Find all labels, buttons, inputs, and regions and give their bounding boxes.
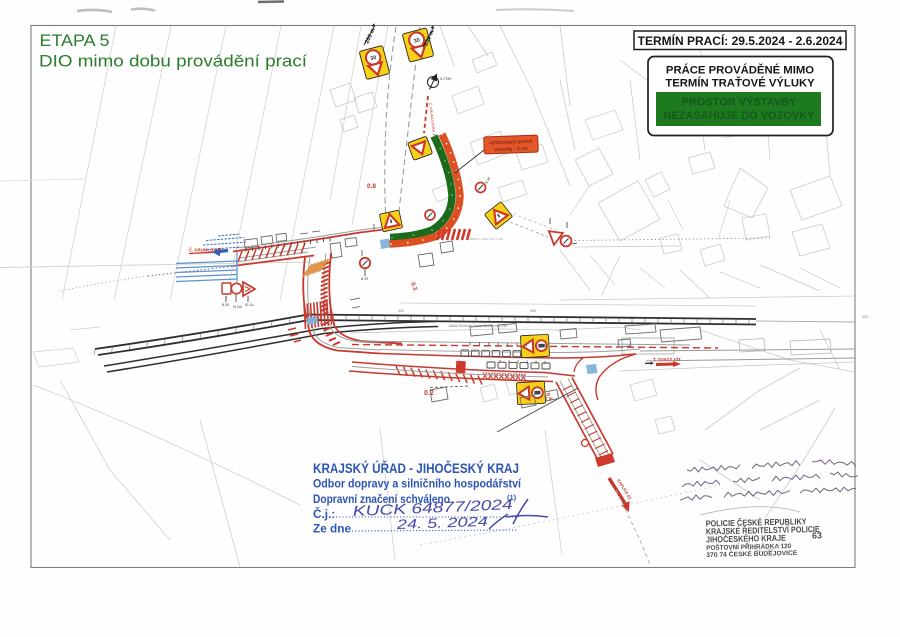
svg-text:NEZASAHUJE DO VOZOVKY: NEZASAHUJE DO VOZOVKY — [664, 110, 816, 122]
svg-text:ETAPA 5: ETAPA 5 — [40, 31, 110, 50]
svg-text:B 29: B 29 — [361, 277, 368, 281]
svg-text:403: 403 — [530, 309, 536, 313]
svg-text:IS 11b: IS 11b — [233, 305, 242, 309]
svg-text:63: 63 — [812, 530, 822, 540]
svg-text:Odbor dopravy a silničního hos: Odbor dopravy a silničního hospodářství — [313, 477, 522, 491]
svg-text:403: 403 — [398, 309, 404, 313]
svg-text:0.8: 0.8 — [367, 183, 376, 190]
svg-text:KRAJSKÝ ÚŘAD - JIHOČESKÝ KRAJ: KRAJSKÝ ÚŘAD - JIHOČESKÝ KRAJ — [313, 461, 519, 476]
svg-text:Č.j.:: Č.j.: — [313, 507, 335, 521]
svg-text:Ze dne: Ze dne — [313, 522, 351, 536]
svg-text:PRÁCE PROVÁDĚNÉ MIMO: PRÁCE PROVÁDĚNÉ MIMO — [666, 64, 814, 77]
svg-text:Jakčín Kumžak České Budějovic: Jakčín Kumžak České Budějovice trať — [448, 323, 508, 328]
svg-text:S-JTSK: S-JTSK — [440, 77, 452, 81]
svg-text:0.2: 0.2 — [424, 390, 434, 397]
svg-text:T. SVATÝ VÍT: T. SVATÝ VÍT — [653, 355, 681, 362]
svg-text:TERMÍN PRACÍ: 29.5.2024 - 2.6.: TERMÍN PRACÍ: 29.5.2024 - 2.6.2024 — [638, 33, 843, 48]
svg-text:IS 11c: IS 11c — [245, 303, 254, 307]
svg-text:403: 403 — [862, 315, 868, 319]
svg-text:DIO mimo dobu provádění prací: DIO mimo dobu provádění prací — [39, 52, 307, 71]
svg-text:TERMÍN TRAŤOVÉ VÝLUKY: TERMÍN TRAŤOVÉ VÝLUKY — [665, 77, 815, 90]
svg-text:vozovky - 5 cm: vozovky - 5 cm — [494, 146, 528, 153]
svg-text:ZABRANY UZAV. DO 1 KM: ZABRANY UZAV. DO 1 KM — [466, 237, 503, 241]
svg-text:Č. KRUMLOV 39: Č. KRUMLOV 39 — [189, 248, 223, 253]
svg-text:PROSTOR VÝSTAVBY: PROSTOR VÝSTAVBY — [682, 96, 798, 109]
svg-text:B 28: B 28 — [222, 303, 229, 307]
